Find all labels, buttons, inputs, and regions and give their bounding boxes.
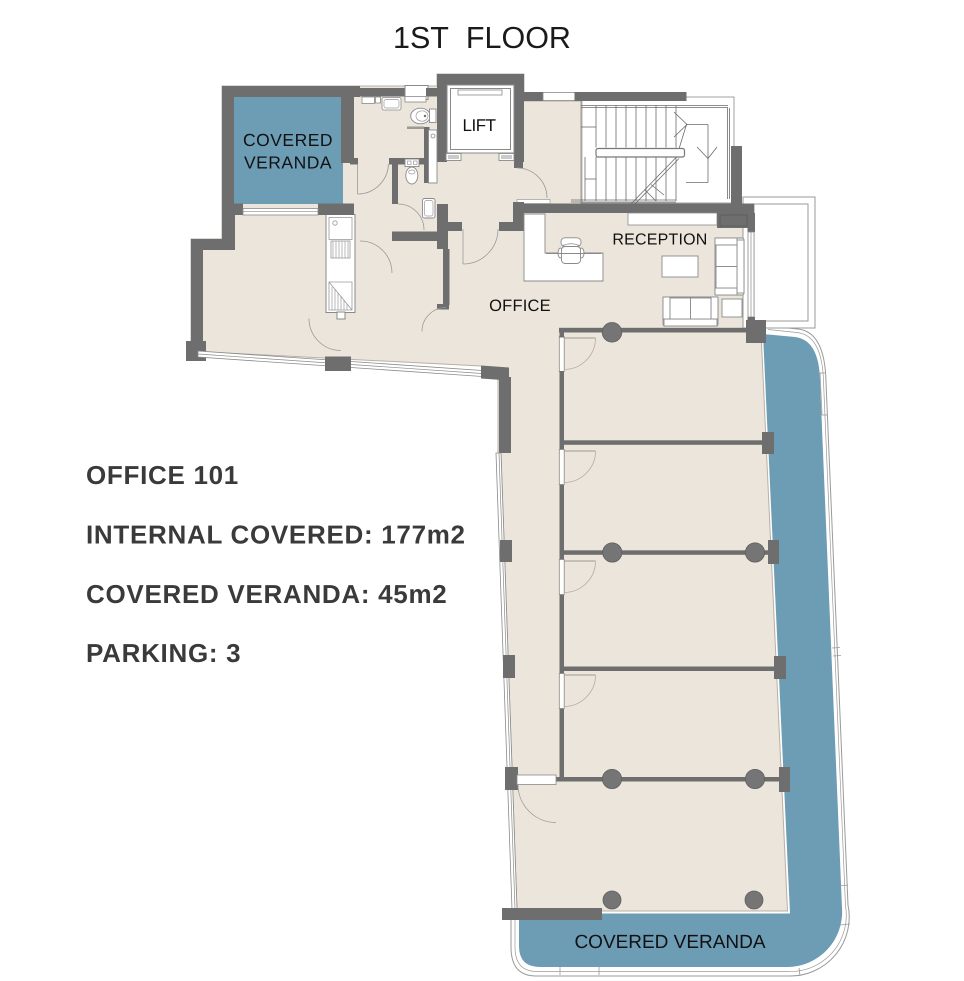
- svg-text:LIFT: LIFT: [463, 116, 496, 135]
- svg-text:INTERNAL COVERED: 177m2: INTERNAL COVERED: 177m2: [86, 520, 466, 550]
- svg-text:COVERED VERANDA: COVERED VERANDA: [574, 932, 765, 953]
- svg-text:OFFICE 101: OFFICE 101: [86, 460, 239, 490]
- svg-text:OFFICE: OFFICE: [489, 297, 551, 315]
- svg-text:COVERED: COVERED: [243, 130, 333, 150]
- svg-text:COVERED VERANDA: 45m2: COVERED VERANDA: 45m2: [86, 579, 447, 609]
- svg-text:RECEPTION: RECEPTION: [612, 232, 707, 249]
- svg-text:1ST FLOOR: 1ST FLOOR: [393, 21, 571, 55]
- svg-text:PARKING: 3: PARKING: 3: [86, 638, 241, 668]
- svg-text:VERANDA: VERANDA: [244, 153, 332, 173]
